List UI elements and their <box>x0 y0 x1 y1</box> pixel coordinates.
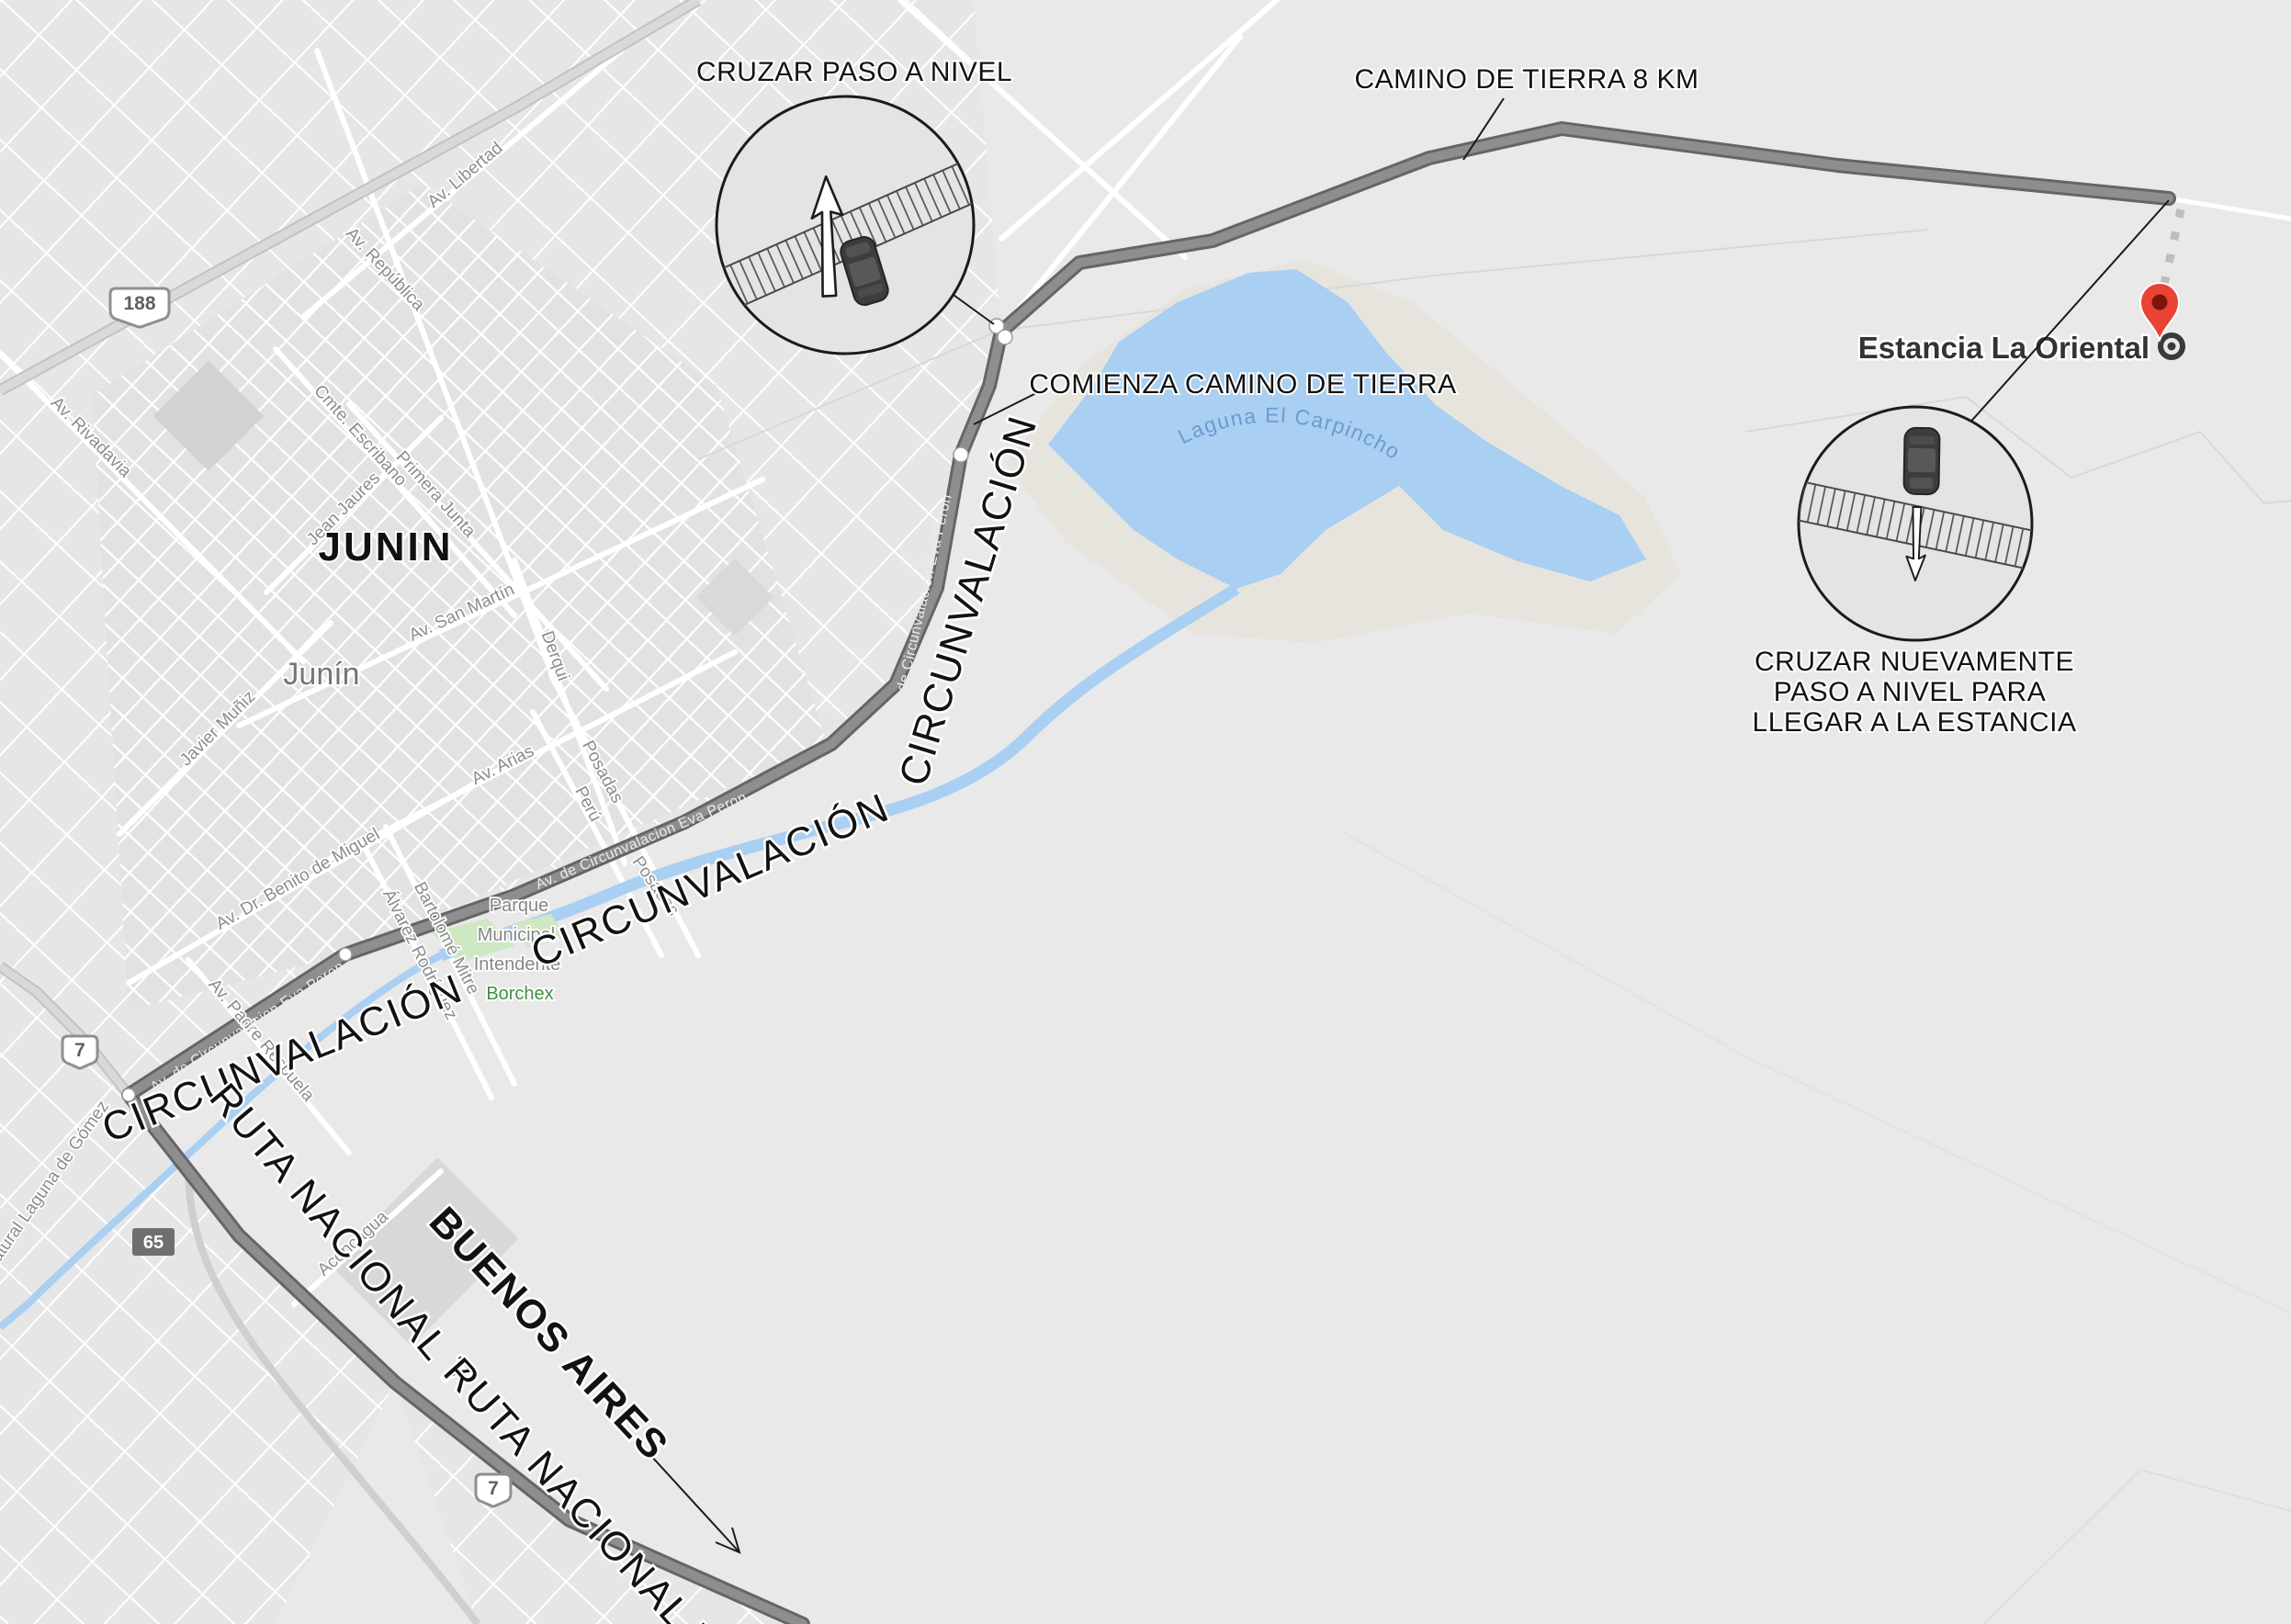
svg-text:LLEGAR A LA ESTANCIA: LLEGAR A LA ESTANCIA <box>1753 707 2077 738</box>
city-label-junin-big: JUNIN <box>318 524 453 570</box>
svg-text:188: 188 <box>123 293 155 314</box>
city-label-junin-small: Junín <box>283 657 359 692</box>
svg-text:7: 7 <box>488 1478 499 1499</box>
annotation-cruzar-paso-a-nivel: CRUZAR PASO A NIVEL <box>696 57 1012 87</box>
shield-7-south: 7 <box>476 1474 511 1506</box>
annotation-comienza-camino-de-tierra: COMIENZA CAMINO DE TIERRA <box>1029 369 1456 400</box>
shield-188: 188 <box>110 288 169 327</box>
shield-65: 65 <box>132 1228 175 1256</box>
svg-text:65: 65 <box>143 1233 164 1253</box>
annotation-camino-de-tierra-8km: CAMINO DE TIERRA 8 KM <box>1354 64 1698 95</box>
svg-text:Parque: Parque <box>490 896 549 916</box>
shield-7-west: 7 <box>62 1036 97 1068</box>
car-icon <box>1903 428 1939 495</box>
map-canvas[interactable]: Estancia La Oriental Av. Libertad Av. Re… <box>0 0 2291 1624</box>
svg-text:7: 7 <box>74 1040 85 1061</box>
annotation-cruzar-nuevamente: CRUZAR NUEVAMENTE PASO A NIVEL PARA LLEG… <box>1753 647 2077 738</box>
svg-text:PASO A NIVEL PARA: PASO A NIVEL PARA <box>1774 677 2046 707</box>
estancia-label: Estancia La Oriental <box>1858 331 2150 365</box>
svg-text:CRUZAR NUEVAMENTE: CRUZAR NUEVAMENTE <box>1755 647 2074 677</box>
svg-text:Borchex: Borchex <box>486 984 553 1004</box>
route-map: Estancia La Oriental Av. Libertad Av. Re… <box>0 0 2291 1624</box>
